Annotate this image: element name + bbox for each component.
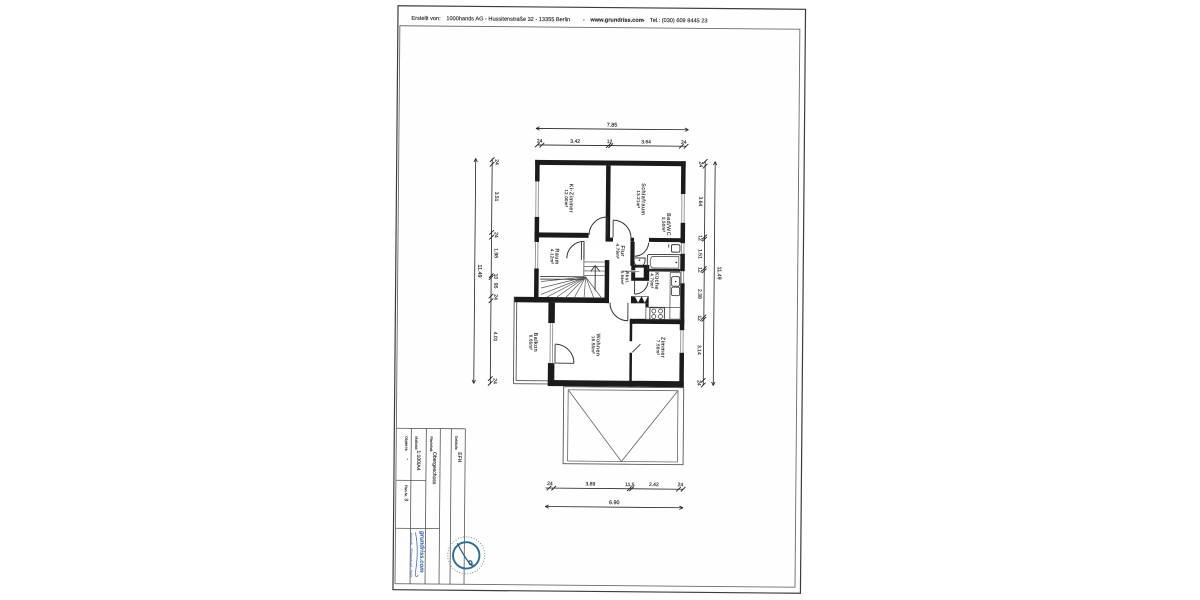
- svg-text:24: 24: [493, 232, 499, 238]
- svg-text:24: 24: [697, 162, 703, 168]
- svg-text:24: 24: [492, 294, 498, 300]
- svg-text:4.01: 4.01: [492, 332, 498, 342]
- svg-text:95: 95: [492, 283, 498, 289]
- svg-text:3.64: 3.64: [697, 196, 703, 206]
- svg-text:3.14: 3.14: [696, 345, 702, 355]
- svg-text:1000hands AG - Hussitenstraße: 1000hands AG - Hussitenstraße 32 - 13355…: [446, 16, 570, 23]
- svg-text:3.51: 3.51: [493, 192, 499, 202]
- svg-text:24: 24: [681, 140, 687, 146]
- svg-text:2.38: 2.38: [696, 289, 702, 299]
- svg-text:1:100/A4: 1:100/A4: [415, 450, 421, 470]
- svg-text:Gebäude: Gebäude: [454, 436, 458, 450]
- svg-text:3.42: 3.42: [570, 139, 580, 145]
- svg-text:Anschrift · 1000hands AG · Ber: Anschrift · 1000hands AG · Berlin: [409, 533, 413, 578]
- svg-text:Tel.: (030) 609 8445 23: Tel.: (030) 609 8445 23: [650, 18, 708, 25]
- svg-text:1.98: 1.98: [493, 248, 499, 258]
- svg-text:Plan-Nr.: Plan-Nr.: [404, 485, 408, 497]
- svg-text:Erstellt von:: Erstellt von:: [411, 16, 441, 22]
- svg-text:24: 24: [547, 481, 553, 487]
- svg-text:3.50m²: 3.50m²: [661, 217, 666, 232]
- svg-text:24: 24: [493, 159, 499, 165]
- svg-text:Planinhalt: Planinhalt: [429, 437, 433, 452]
- svg-text:grundriss.com: grundriss.com: [418, 530, 424, 573]
- svg-text:13.21m²: 13.21m²: [636, 190, 641, 208]
- svg-text:-: -: [583, 17, 585, 23]
- svg-text:11.49: 11.49: [476, 264, 482, 277]
- svg-text:16.56m²: 16.56m²: [591, 336, 596, 354]
- svg-text:6.90: 6.90: [609, 500, 620, 506]
- svg-text:24: 24: [537, 138, 543, 144]
- svg-text:24: 24: [491, 378, 497, 384]
- svg-text:12: 12: [697, 235, 703, 241]
- svg-text:0.94m²: 0.94m²: [620, 271, 625, 285]
- svg-text:12: 12: [696, 315, 702, 321]
- svg-text:4.12m²: 4.12m²: [550, 249, 555, 264]
- svg-text:Maßstab: Maßstab: [414, 436, 418, 449]
- svg-text:7.85: 7.85: [607, 123, 618, 129]
- svg-text:6.65m²: 6.65m²: [528, 335, 533, 350]
- svg-text:12: 12: [696, 267, 702, 273]
- svg-text:3.64: 3.64: [641, 139, 651, 145]
- svg-text:12.00m²: 12.00m²: [564, 189, 569, 207]
- svg-text:4.79m²: 4.79m²: [615, 244, 620, 259]
- svg-text:7.56m²: 7.56m²: [656, 340, 661, 355]
- svg-text:3: 3: [403, 498, 409, 501]
- svg-text:24: 24: [678, 482, 684, 488]
- svg-text:www.grundriss.com: www.grundriss.com: [589, 17, 643, 23]
- svg-text:11.49: 11.49: [716, 266, 722, 279]
- svg-text:10: 10: [492, 274, 498, 280]
- svg-text:2.42: 2.42: [649, 482, 659, 488]
- svg-text:12: 12: [607, 139, 613, 145]
- svg-text:4.79m²: 4.79m²: [649, 273, 654, 288]
- svg-text:-: -: [643, 18, 645, 24]
- svg-text:EFH: EFH: [456, 452, 462, 462]
- svg-text:1.51: 1.51: [697, 249, 703, 259]
- svg-text:Obergeschoss: Obergeschoss: [431, 452, 437, 485]
- svg-text:3.89: 3.89: [585, 481, 595, 487]
- svg-text:24: 24: [695, 380, 701, 386]
- svg-text:Objekt-Nr.: Objekt-Nr.: [404, 436, 408, 451]
- svg-text:11,5: 11,5: [625, 482, 635, 488]
